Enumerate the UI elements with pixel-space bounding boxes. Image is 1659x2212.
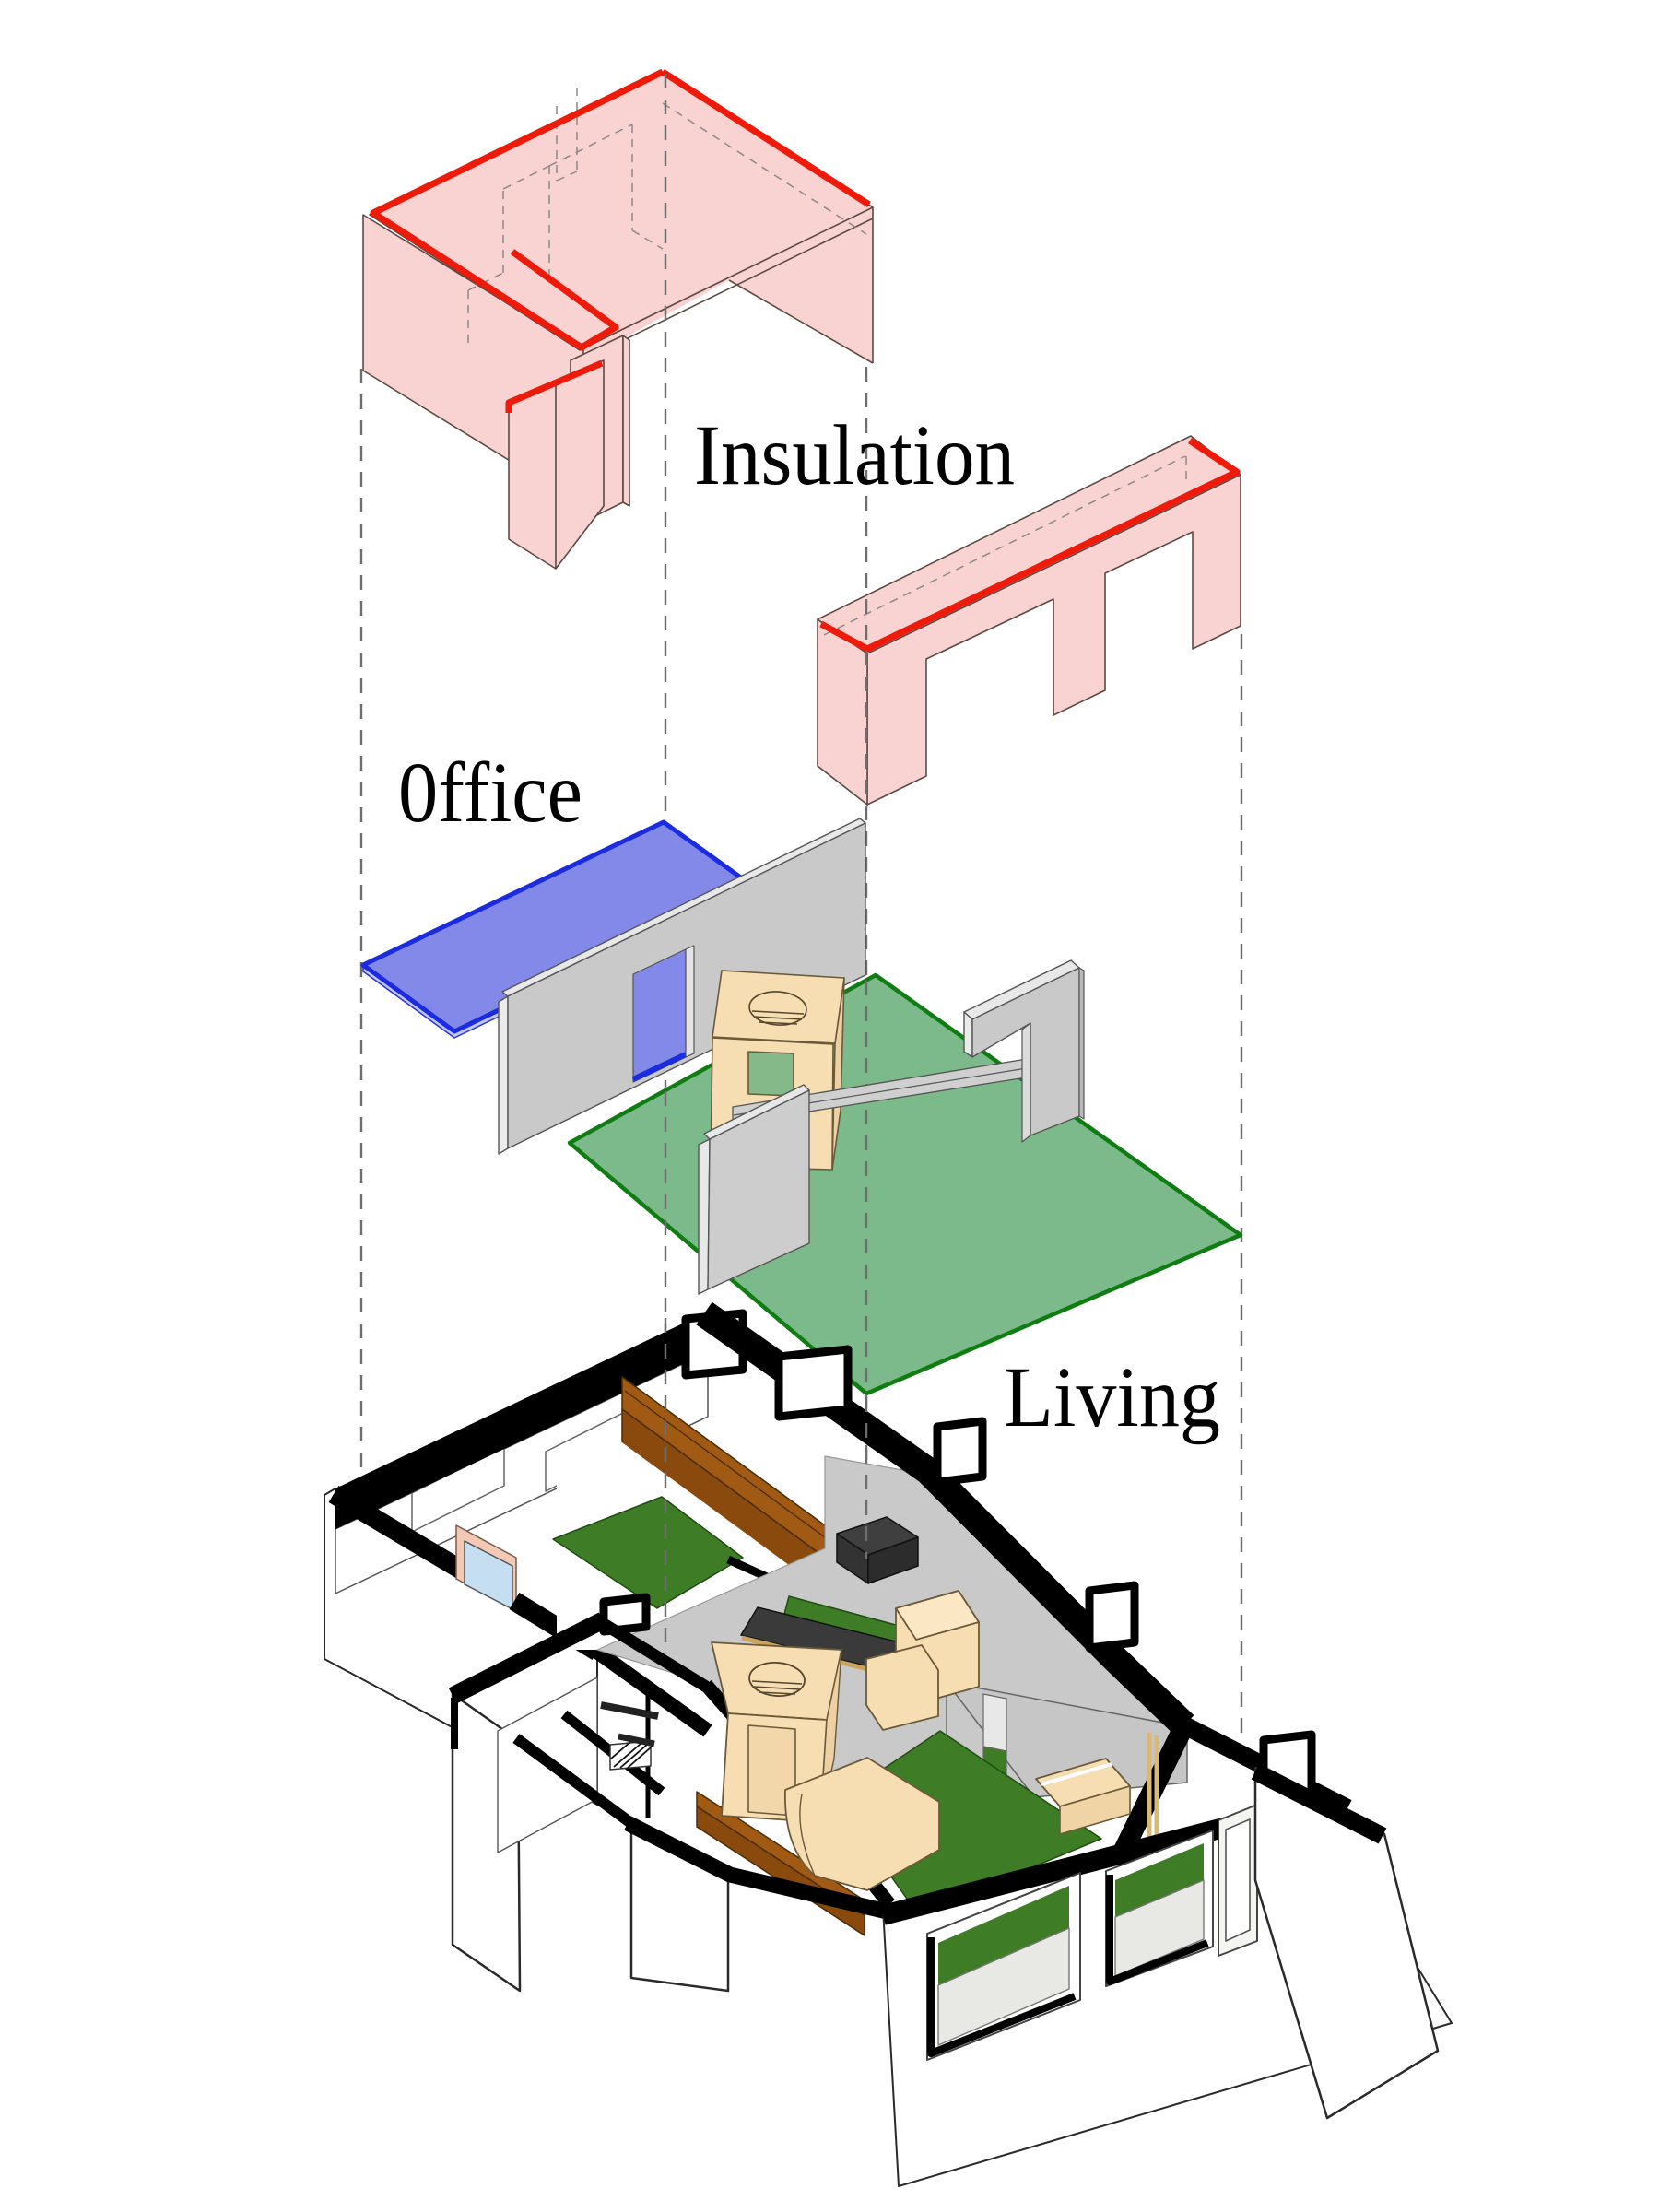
svg-text:0ffice: 0ffice <box>398 746 582 841</box>
svg-text:Insulation: Insulation <box>694 408 1015 503</box>
svg-text:Living: Living <box>1004 1350 1220 1445</box>
